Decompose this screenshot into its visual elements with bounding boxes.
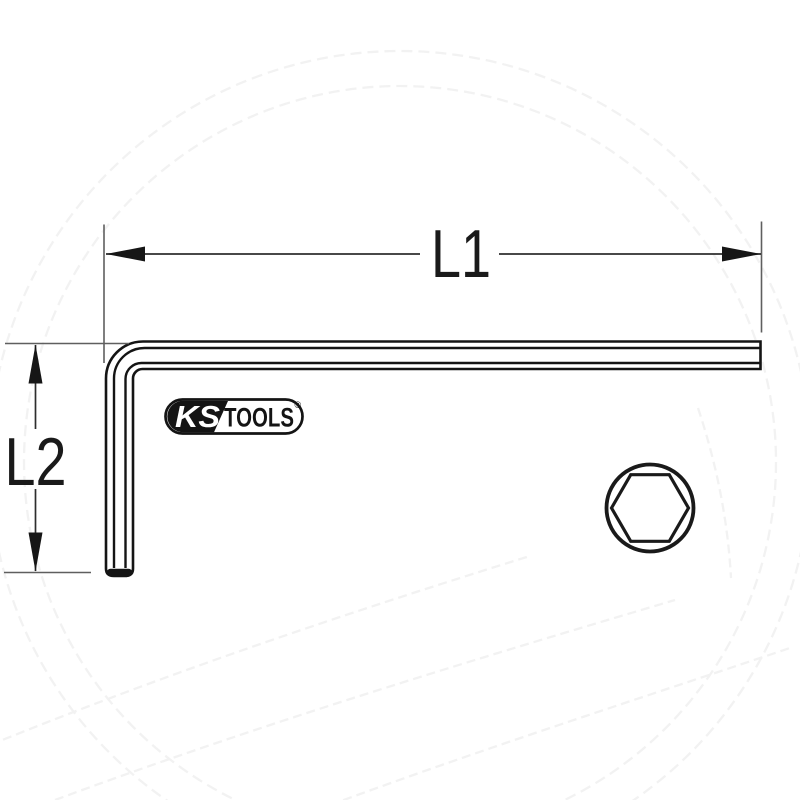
product-technical-drawing: L1 L2 KS TOOLS ® <box>0 0 800 800</box>
hex-key-diagram: L1 L2 KS TOOLS ® <box>0 0 800 800</box>
logo-tools-text: TOOLS <box>224 403 294 433</box>
l2-label: L2 <box>5 424 67 500</box>
watermark-swoosh-3 <box>330 648 790 800</box>
hex-cross-section <box>607 465 694 552</box>
l1-arrowhead-left <box>106 247 145 262</box>
watermark-swoosh-2 <box>55 600 675 800</box>
l2-arrowhead-down <box>29 533 43 572</box>
logo-registered-mark-text: ® <box>295 400 302 410</box>
l1-arrowhead-right <box>722 247 761 262</box>
l1-label: L1 <box>431 216 491 292</box>
watermark-swoosh-1 <box>0 556 530 745</box>
logo-ks-text: KS <box>175 399 220 434</box>
watermark-swoosh-4 <box>698 408 731 578</box>
watermark-circle-inner <box>24 86 776 800</box>
ks-tools-logo: KS TOOLS ® <box>166 399 303 434</box>
